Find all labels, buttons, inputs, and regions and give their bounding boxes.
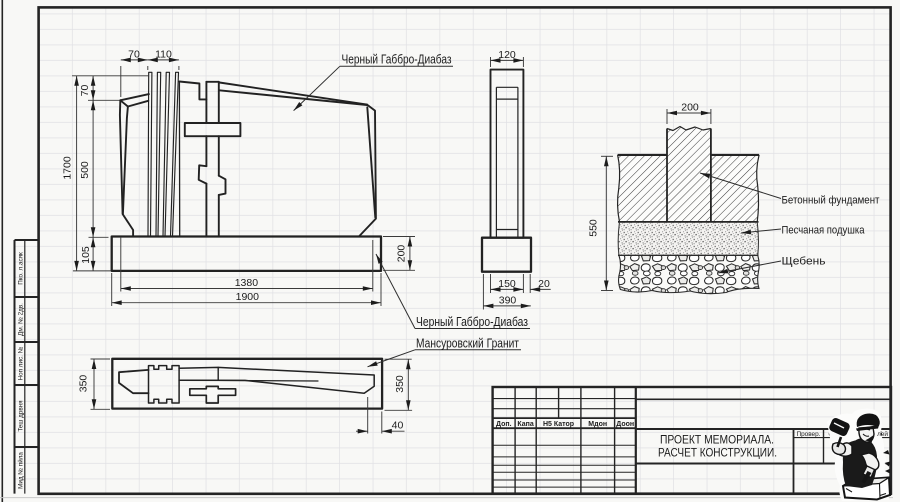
svg-text:Теш дрвня: Теш дрвня xyxy=(18,400,25,431)
svg-text:Ноп лис. №: Ноп лис. № xyxy=(18,346,25,380)
svg-text:Доп.: Доп. xyxy=(496,421,512,428)
svg-text:Провер.: Провер. xyxy=(797,431,821,438)
svg-text:Песчаная подушка: Песчаная подушка xyxy=(782,225,866,237)
svg-text:Черный Габбро-Диабаз: Черный Габбро-Диабаз xyxy=(342,53,452,67)
svg-text:ПРОЕКТ МЕМОРИАЛА.: ПРОЕКТ МЕМОРИАЛА. xyxy=(660,433,774,447)
svg-text:1380: 1380 xyxy=(235,277,259,289)
svg-text:РАСЧЕТ КОНСТРУКЦИИ.: РАСЧЕТ КОНСТРУКЦИИ. xyxy=(658,446,777,460)
svg-text:Мансуровский Гранит: Мансуровский Гранит xyxy=(416,336,519,350)
svg-text:40: 40 xyxy=(392,420,404,432)
svg-text:1700: 1700 xyxy=(62,156,74,180)
svg-text:Пко. л.асяк: Пко. л.асяк xyxy=(18,252,25,285)
svg-text:Бетонный фундамент: Бетонный фундамент xyxy=(782,195,880,207)
svg-text:390: 390 xyxy=(499,294,517,306)
svg-text:500: 500 xyxy=(79,161,91,179)
svg-text:150: 150 xyxy=(498,278,516,290)
svg-text:70: 70 xyxy=(79,85,91,97)
svg-text:105: 105 xyxy=(80,246,92,264)
svg-text:350: 350 xyxy=(394,375,406,393)
svg-text:лей: лей xyxy=(877,430,888,438)
svg-text:Щебень: Щебень xyxy=(782,256,826,268)
svg-text:Дм. № 2дв.: Дм. № 2дв. xyxy=(18,303,25,336)
svg-text:Н5 Катор: Н5 Катор xyxy=(543,421,574,428)
svg-text:550: 550 xyxy=(588,219,600,237)
svg-text:200: 200 xyxy=(681,102,699,114)
svg-text:120: 120 xyxy=(498,49,516,61)
svg-text:200: 200 xyxy=(396,245,408,263)
svg-text:Доон: Доон xyxy=(616,421,634,428)
svg-text:110: 110 xyxy=(155,49,172,61)
svg-text:70: 70 xyxy=(128,49,140,61)
svg-text:350: 350 xyxy=(78,375,90,393)
svg-text:20: 20 xyxy=(538,278,550,290)
svg-text:Черный Габбро-Диабаз: Черный Габбро-Диабаз xyxy=(416,315,528,329)
svg-text:Капа: Капа xyxy=(517,421,533,428)
svg-text:Мид № пйла: Мид № пйла xyxy=(17,452,25,489)
svg-text:Мдон: Мдон xyxy=(588,421,607,428)
svg-text:1900: 1900 xyxy=(236,291,260,303)
